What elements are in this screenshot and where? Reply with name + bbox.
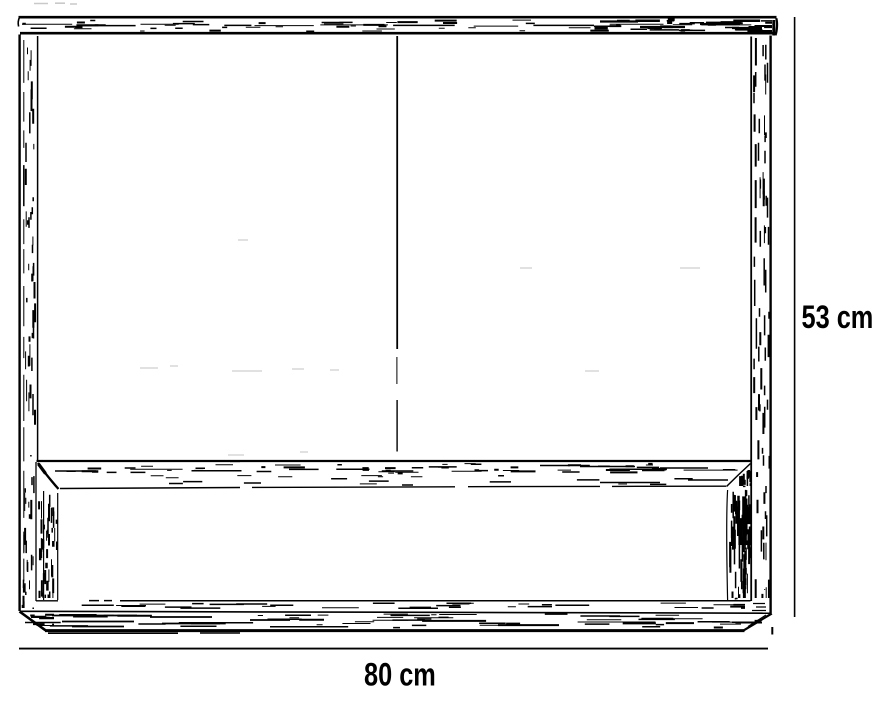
svg-text:53 cm: 53 cm (802, 300, 874, 336)
svg-text:80 cm: 80 cm (364, 657, 436, 693)
